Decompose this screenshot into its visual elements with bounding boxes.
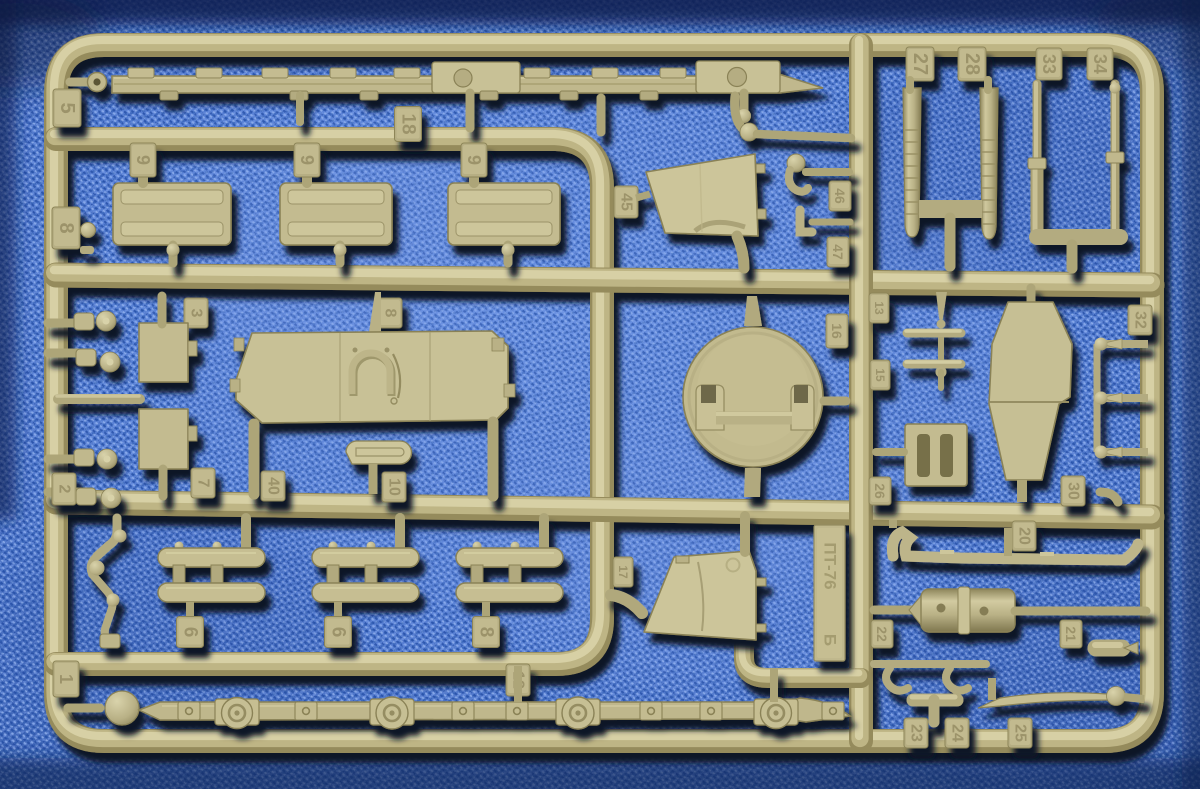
svg-text:9: 9: [297, 155, 317, 165]
svg-text:34: 34: [1090, 54, 1110, 74]
svg-text:8: 8: [476, 627, 497, 638]
svg-text:25: 25: [1012, 724, 1029, 742]
svg-text:3: 3: [188, 309, 205, 318]
svg-text:8: 8: [382, 309, 399, 318]
svg-text:27: 27: [909, 53, 931, 75]
svg-text:15: 15: [873, 368, 887, 382]
svg-text:40: 40: [265, 477, 282, 495]
svg-text:23: 23: [908, 724, 925, 742]
svg-text:28: 28: [961, 53, 983, 75]
svg-text:9: 9: [133, 155, 153, 165]
svg-text:47: 47: [830, 244, 846, 260]
svg-text:20: 20: [1016, 527, 1033, 545]
svg-text:18: 18: [398, 113, 419, 134]
svg-text:45: 45: [618, 193, 635, 211]
svg-text:7: 7: [195, 479, 212, 488]
svg-text:5: 5: [56, 102, 78, 113]
svg-text:6: 6: [180, 627, 201, 638]
svg-text:1: 1: [56, 674, 76, 684]
svg-text:22: 22: [874, 626, 890, 642]
svg-text:Б: Б: [821, 634, 840, 646]
svg-text:33: 33: [1039, 54, 1059, 74]
svg-text:8: 8: [55, 222, 77, 233]
svg-text:6: 6: [328, 627, 349, 638]
svg-text:10: 10: [386, 478, 403, 496]
svg-text:24: 24: [949, 724, 966, 742]
svg-text:46: 46: [832, 188, 848, 204]
svg-text:2: 2: [56, 485, 73, 494]
svg-text:17: 17: [616, 565, 630, 579]
svg-text:30: 30: [1065, 482, 1082, 500]
svg-text:32: 32: [1132, 311, 1149, 329]
svg-text:26: 26: [872, 483, 888, 499]
svg-text:13: 13: [872, 301, 886, 315]
svg-text:9: 9: [464, 155, 484, 165]
svg-text:16: 16: [829, 323, 845, 339]
svg-text:ПТ-76: ПТ-76: [821, 542, 840, 589]
svg-text:21: 21: [1063, 626, 1079, 642]
